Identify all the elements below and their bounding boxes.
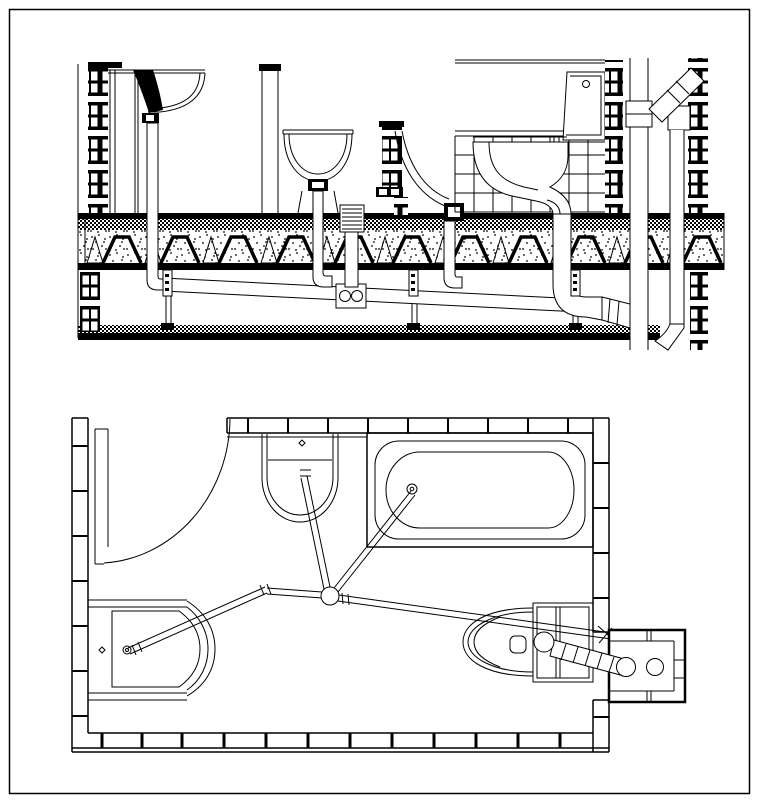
section-view-drawing bbox=[78, 58, 724, 350]
stack-riser-plan bbox=[617, 658, 636, 677]
tiled-wall-right bbox=[593, 418, 609, 752]
door-swing-arc bbox=[104, 419, 230, 563]
brick-wall-right-2 bbox=[688, 58, 708, 350]
washbasin-plan bbox=[262, 434, 338, 522]
shower-basin-plan bbox=[88, 600, 215, 700]
tiled-wall-bottom bbox=[72, 733, 609, 752]
tiled-wall-top bbox=[227, 418, 609, 433]
concealed-flush-unit bbox=[376, 121, 464, 221]
supply-riser bbox=[259, 64, 281, 213]
horizontal-drain-run bbox=[163, 278, 600, 313]
shower-drain-pipe bbox=[128, 587, 267, 654]
stack-branch-connector bbox=[602, 297, 630, 328]
brick-wall-right-1 bbox=[605, 60, 623, 213]
tub-drain bbox=[407, 484, 417, 494]
wall-finish-left bbox=[95, 429, 108, 564]
symbol-diamond bbox=[299, 440, 305, 446]
plan-drain-pipes bbox=[128, 470, 615, 655]
cistern bbox=[563, 72, 605, 140]
cad-drawing bbox=[0, 0, 762, 808]
tiled-wall-left bbox=[72, 418, 88, 752]
wc-outlet-plan bbox=[534, 632, 554, 652]
bathtub-plan bbox=[367, 433, 593, 547]
drawing-canvas bbox=[0, 0, 762, 808]
floor-slab bbox=[78, 213, 724, 270]
service-shaft bbox=[534, 630, 685, 702]
plan-view-drawing bbox=[72, 418, 685, 752]
wc-pan bbox=[473, 142, 571, 214]
symbol-diamond bbox=[99, 647, 105, 653]
brick-wall-left bbox=[78, 62, 138, 338]
flush-inlet bbox=[510, 636, 526, 653]
central-floor-junction bbox=[321, 587, 339, 605]
basin-drain-pipe bbox=[300, 470, 330, 589]
plan-walls bbox=[72, 418, 609, 752]
main-drain-pipe bbox=[338, 593, 612, 639]
washbasin-section bbox=[108, 70, 205, 123]
